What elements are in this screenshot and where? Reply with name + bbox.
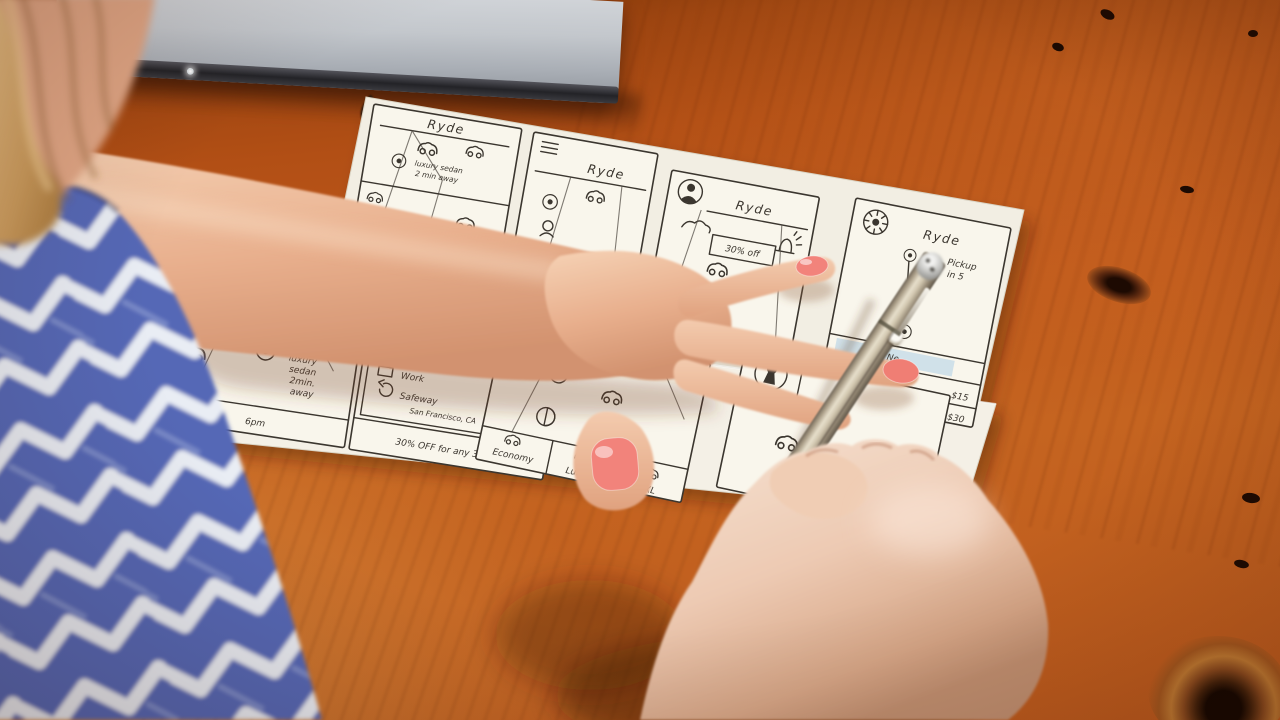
hand-highlight <box>870 484 990 556</box>
right-hand-layer <box>0 0 1280 720</box>
photo-scene: Ryde luxury sedan 2 min away Ryde <box>0 0 1280 720</box>
